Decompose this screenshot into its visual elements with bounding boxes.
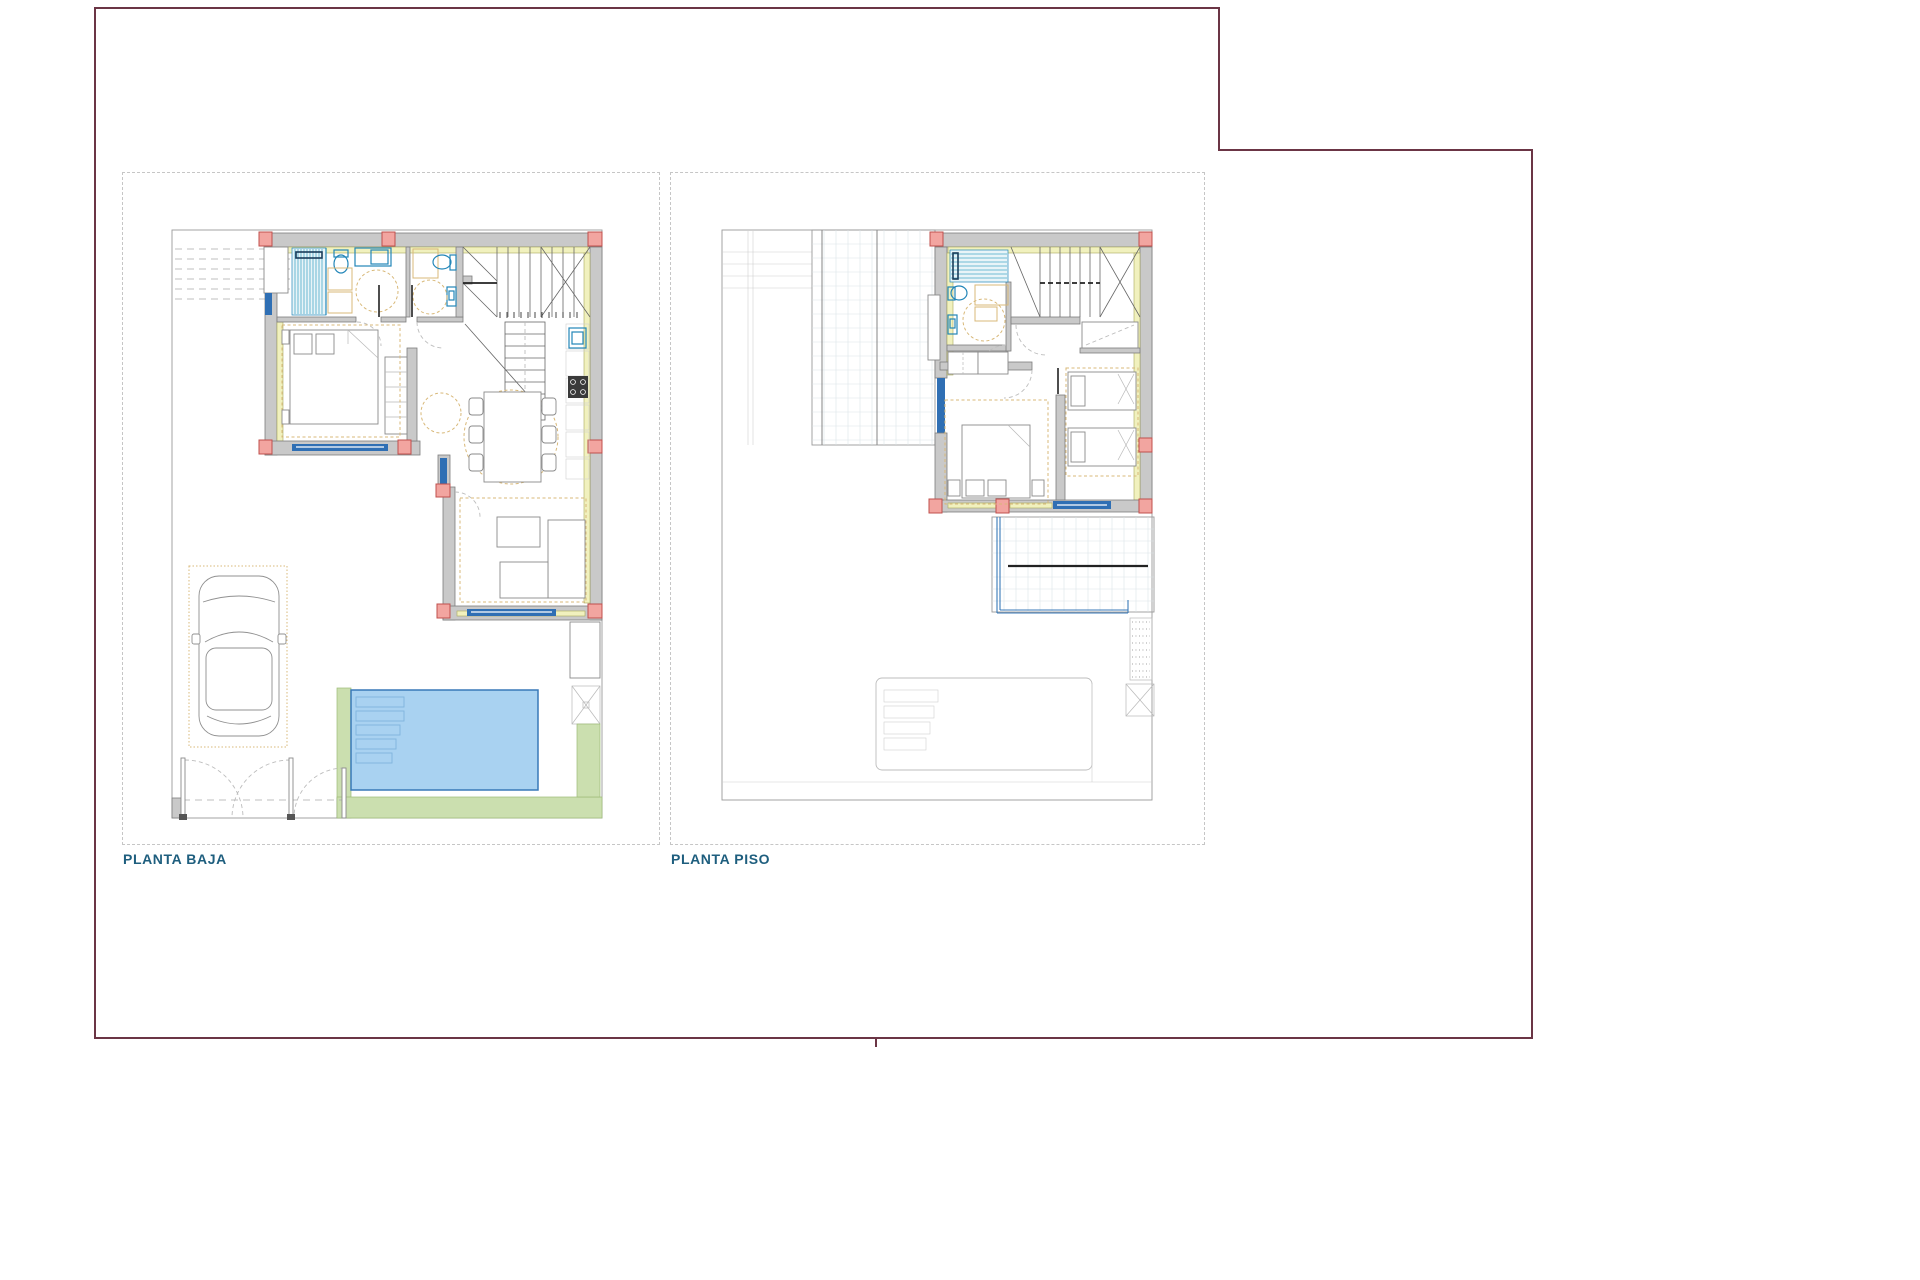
stair-closet xyxy=(1082,322,1138,348)
stove-icon xyxy=(568,376,588,398)
hall-closet xyxy=(385,357,407,434)
toilet-icon xyxy=(334,255,348,273)
terrace xyxy=(992,517,1154,613)
plan-title-planta-baja: PLANTA BAJA xyxy=(123,851,227,867)
sink-icon xyxy=(447,287,456,306)
gravel-strip xyxy=(1130,618,1152,680)
roof-grid xyxy=(812,230,935,445)
bedroom xyxy=(282,325,400,437)
toilet-icon xyxy=(951,286,967,300)
coffee-table xyxy=(497,517,540,547)
bedroom-master xyxy=(945,400,1048,504)
bedroom-twin xyxy=(1066,368,1138,476)
living-room xyxy=(460,498,586,602)
drawing-sheet: PLANTA BAJA PLANTA PISO xyxy=(0,0,1920,1280)
plan-title-planta-piso: PLANTA PISO xyxy=(671,851,770,867)
bathroom-1 xyxy=(328,248,398,317)
garage xyxy=(189,566,287,747)
left-window xyxy=(265,293,272,315)
toilet-icon xyxy=(433,255,451,269)
turning-circle xyxy=(356,270,398,312)
sofa xyxy=(548,520,585,598)
car-icon xyxy=(192,576,286,736)
sofa xyxy=(500,562,548,598)
bathroom-2 xyxy=(412,249,456,317)
floorplan-planta-baja xyxy=(122,172,658,843)
shower xyxy=(292,248,326,315)
skylight xyxy=(572,686,600,724)
floorplan-planta-piso xyxy=(670,172,1203,843)
dining-table xyxy=(484,392,541,482)
dining-area xyxy=(464,390,558,484)
shower xyxy=(950,250,1008,282)
skylight xyxy=(1126,684,1154,716)
swimming-pool xyxy=(351,690,538,790)
pool-reference xyxy=(876,678,1092,782)
entrance-gate xyxy=(179,758,346,820)
storage-box xyxy=(570,622,600,678)
turning-circle xyxy=(413,280,447,314)
corridor-cupboard xyxy=(948,352,1008,374)
entry-closet xyxy=(264,247,288,293)
